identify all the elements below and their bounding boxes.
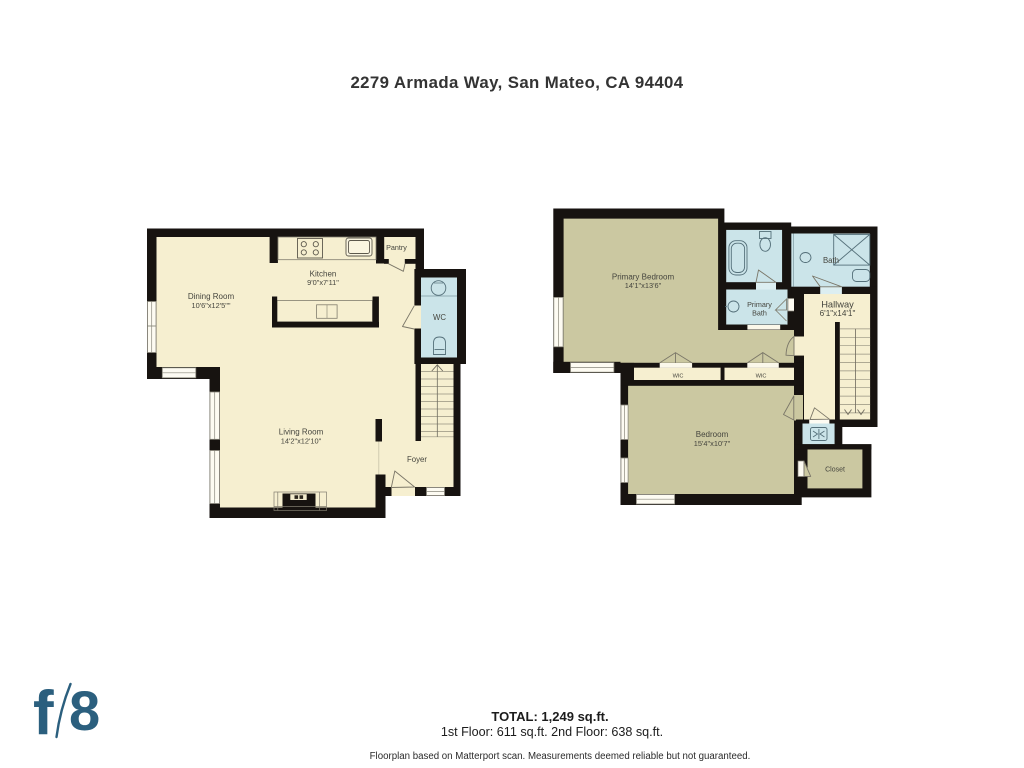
svg-text:WIC: WIC [756,374,767,380]
svg-text:Pantry: Pantry [386,243,407,252]
svg-text:9'0"x7'11": 9'0"x7'11" [307,278,339,287]
svg-text:1st Floor: 611 sq.ft. 2nd Floo: 1st Floor: 611 sq.ft. 2nd Floor: 638 sq.… [441,725,663,739]
svg-text:6'1"x14'1": 6'1"x14'1" [820,309,856,318]
svg-text:Bath: Bath [752,309,767,318]
svg-text:WC: WC [433,313,446,322]
svg-text:8: 8 [69,679,100,742]
svg-text:WIC: WIC [673,374,684,380]
svg-text:14'1"x13'6": 14'1"x13'6" [625,281,662,290]
svg-text:TOTAL: 1,249 sq.ft.: TOTAL: 1,249 sq.ft. [491,709,608,724]
svg-text:Dining Room: Dining Room [188,292,235,301]
svg-text:Kitchen: Kitchen [310,270,337,279]
svg-text:Foyer: Foyer [407,455,427,464]
svg-text:10'6"x12'5"": 10'6"x12'5"" [191,301,230,310]
svg-text:14'2"x12'10": 14'2"x12'10" [281,437,322,446]
svg-text:Living Room: Living Room [279,428,324,437]
svg-text:Bedroom: Bedroom [696,430,729,439]
svg-text:2279 Armada Way, San Mateo, CA: 2279 Armada Way, San Mateo, CA 94404 [350,73,683,92]
svg-text:Bath: Bath [823,256,839,265]
svg-text:f: f [33,679,54,748]
svg-text:15'4"x10'7": 15'4"x10'7" [694,439,731,448]
svg-text:Floorplan based on Matterport: Floorplan based on Matterport scan. Meas… [370,751,751,762]
svg-text:Closet: Closet [825,467,845,474]
svg-text:Hallway: Hallway [821,300,854,310]
